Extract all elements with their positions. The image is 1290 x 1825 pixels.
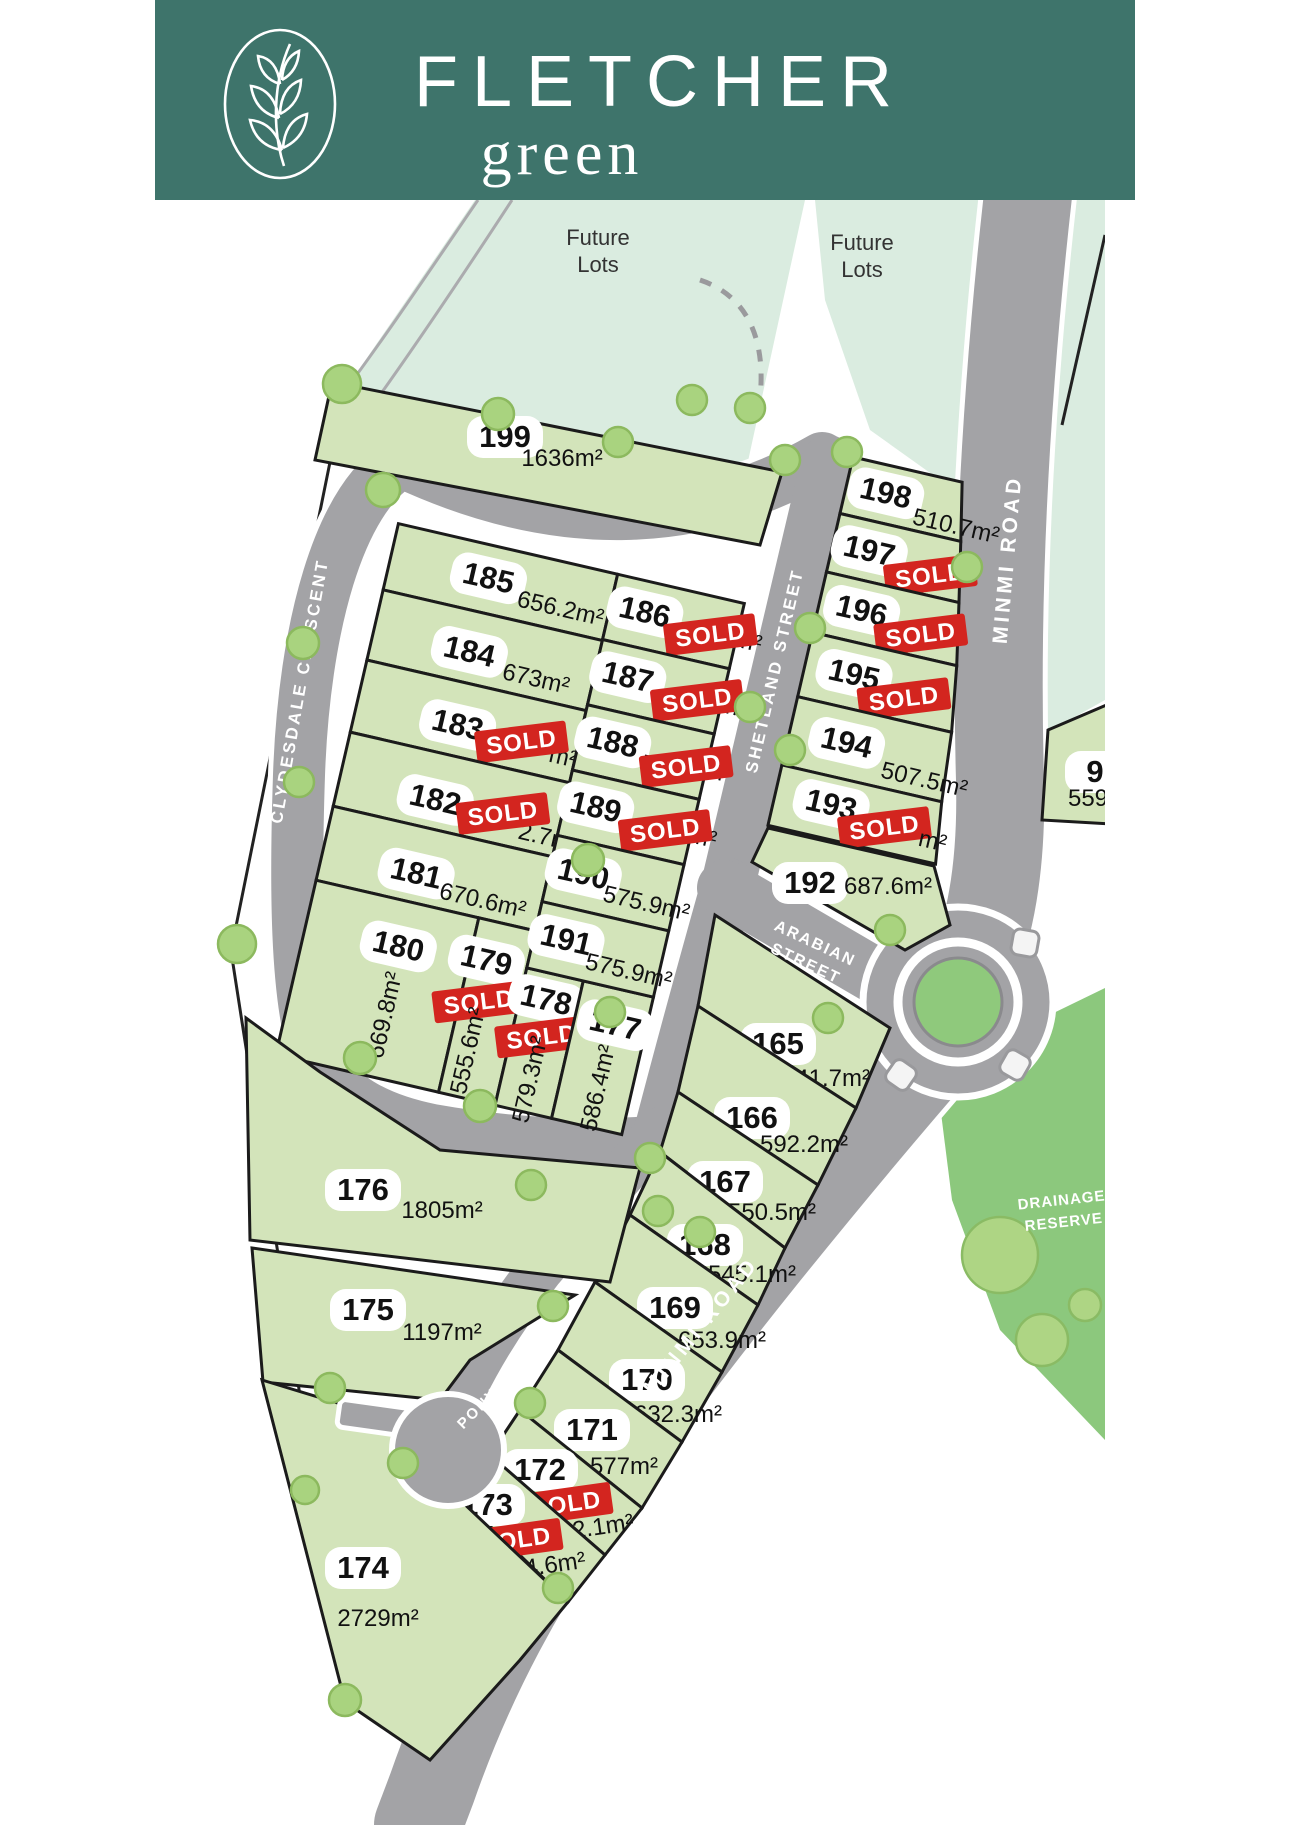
brand-title: FLETCHER: [414, 42, 906, 122]
lot-number-bubble: 192: [772, 862, 848, 904]
future-label-line1: Future: [830, 230, 894, 255]
lot-area: 2729m²: [337, 1605, 418, 1632]
tree-dot: [543, 1573, 573, 1603]
lot-area: 1805m²: [401, 1197, 482, 1224]
lot-number-bubble: 176: [325, 1169, 401, 1211]
lot-number: 171: [566, 1412, 618, 1447]
tree-dot: [677, 385, 707, 415]
tree-dot: [284, 767, 314, 797]
future-label-line2: Lots: [841, 257, 883, 282]
tree-dot: [329, 1684, 361, 1716]
tree-dot: [832, 437, 862, 467]
tree-dot: [323, 365, 361, 403]
tree-dot: [291, 1476, 319, 1504]
future-label-line2: Lots: [577, 252, 619, 277]
tree-dot: [482, 398, 514, 430]
map-area: 199 1636m² 198 510.7m² 197 5 SOLD 196 5 …: [218, 195, 1145, 1825]
lot-number: 175: [342, 1292, 394, 1327]
lot-number: 174: [337, 1550, 389, 1585]
tree-icon: [1016, 1314, 1068, 1366]
tree-dot: [775, 735, 805, 765]
tree-dot: [603, 427, 633, 457]
tree-dot: [875, 915, 905, 945]
tree-dot: [464, 1090, 496, 1122]
lot-number: 192: [784, 865, 836, 900]
future-label-line1: Future: [566, 225, 630, 250]
tree-dot: [735, 393, 765, 423]
lot-area: 1636m²: [521, 445, 602, 472]
tree-dot: [315, 1373, 345, 1403]
tree-dot: [735, 692, 765, 722]
lot-area: 559: [1068, 785, 1108, 812]
subdivision-masterplan: FLETCHER green: [0, 0, 1290, 1825]
tree-dot: [770, 445, 800, 475]
tree-dot: [813, 1003, 843, 1033]
lot-area: 1197m²: [402, 1319, 482, 1346]
tree-dot: [952, 552, 982, 582]
lot-number: 176: [337, 1172, 389, 1207]
tree-dot: [515, 1388, 545, 1418]
tree-dot: [595, 997, 625, 1027]
tree-dot: [516, 1170, 546, 1200]
tree-icon: [1069, 1289, 1101, 1321]
tree-dot: [344, 1042, 376, 1074]
tree-dot: [366, 473, 400, 507]
tree-dot: [388, 1448, 418, 1478]
tree-dot: [685, 1217, 715, 1247]
tree-dot: [643, 1196, 673, 1226]
header-banner: FLETCHER green: [155, 0, 1135, 200]
lot-number-bubble: 175: [330, 1289, 406, 1331]
lot-number-bubble: 174: [325, 1547, 401, 1589]
tree-dot: [538, 1291, 568, 1321]
lot-area: 687.6m²: [844, 873, 932, 900]
tree-dot: [287, 627, 319, 659]
tree-dot: [218, 925, 256, 963]
tree-dot: [795, 613, 825, 643]
roundabout-island: [914, 958, 1002, 1046]
lot-number: 9: [1086, 754, 1103, 789]
traffic-island: [1010, 928, 1040, 958]
tree-dot: [572, 844, 604, 876]
tree-dot: [635, 1143, 665, 1173]
brand-subtitle: green: [481, 120, 644, 188]
